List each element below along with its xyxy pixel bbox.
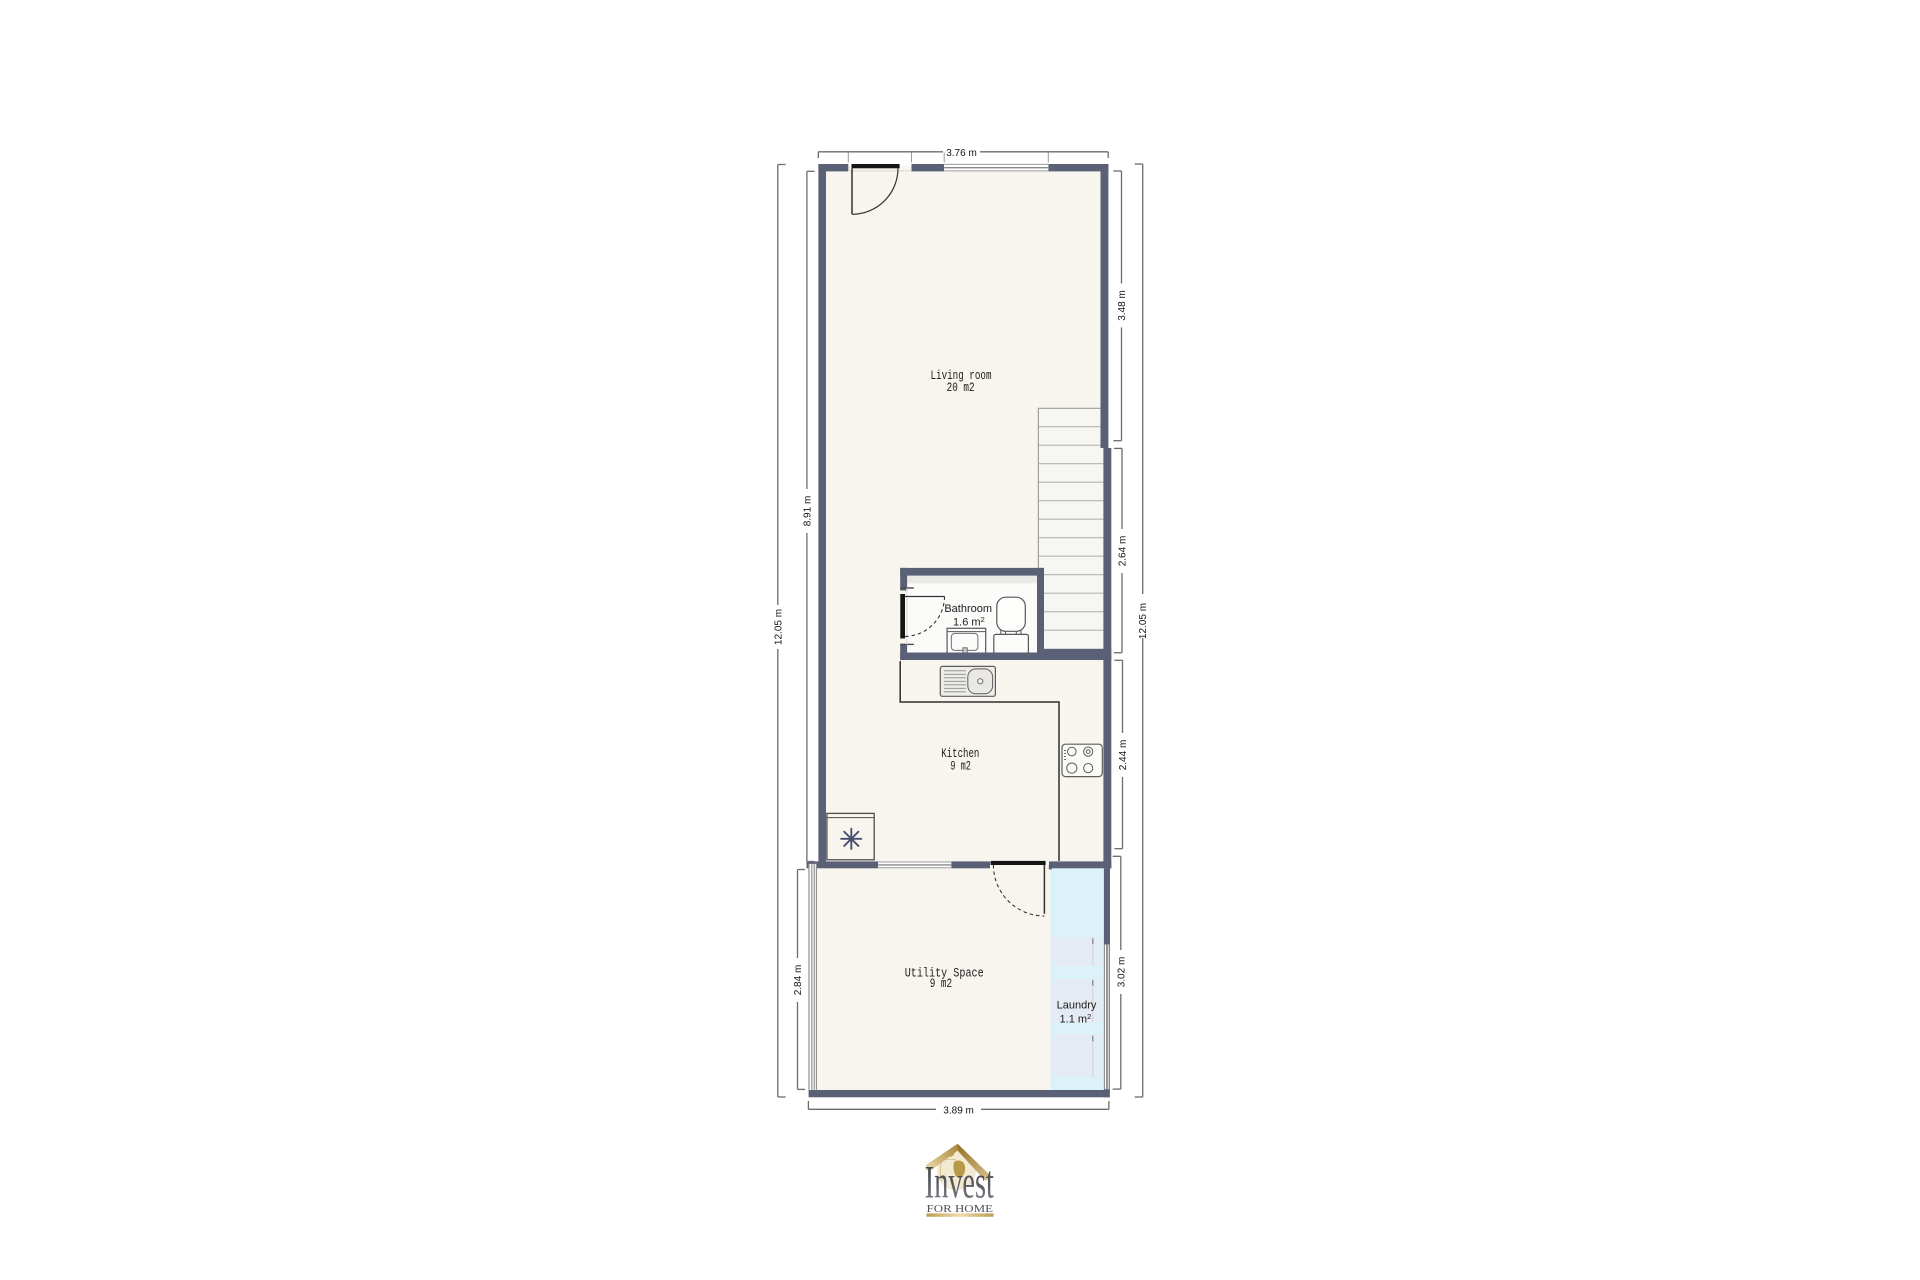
svg-text:12.05 m: 12.05 m — [1138, 603, 1149, 639]
svg-text:20 m2: 20 m2 — [947, 380, 975, 395]
svg-text:12.05 m: 12.05 m — [773, 609, 784, 645]
svg-text:FOR HOME: FOR HOME — [927, 1204, 994, 1215]
svg-text:Invest: Invest — [925, 1157, 994, 1209]
svg-text:3.76 m: 3.76 m — [946, 148, 977, 159]
svg-text:2.44 m: 2.44 m — [1118, 740, 1129, 771]
svg-text:Laundry: Laundry — [1057, 1000, 1097, 1012]
svg-text:2.64 m: 2.64 m — [1118, 536, 1129, 567]
svg-text:3.02 m: 3.02 m — [1116, 957, 1127, 988]
svg-text:Bathroom: Bathroom — [944, 603, 992, 615]
svg-text:1.6 m2: 1.6 m2 — [953, 615, 985, 629]
svg-text:3.48 m: 3.48 m — [1117, 290, 1128, 321]
svg-text:9 m2: 9 m2 — [950, 759, 971, 774]
svg-text:1.1 m2: 1.1 m2 — [1060, 1012, 1092, 1026]
svg-text:3.89 m: 3.89 m — [943, 1105, 974, 1116]
svg-text:8.91 m: 8.91 m — [802, 496, 813, 527]
svg-text:2.84 m: 2.84 m — [793, 965, 804, 996]
svg-text:9 m2: 9 m2 — [930, 976, 952, 991]
